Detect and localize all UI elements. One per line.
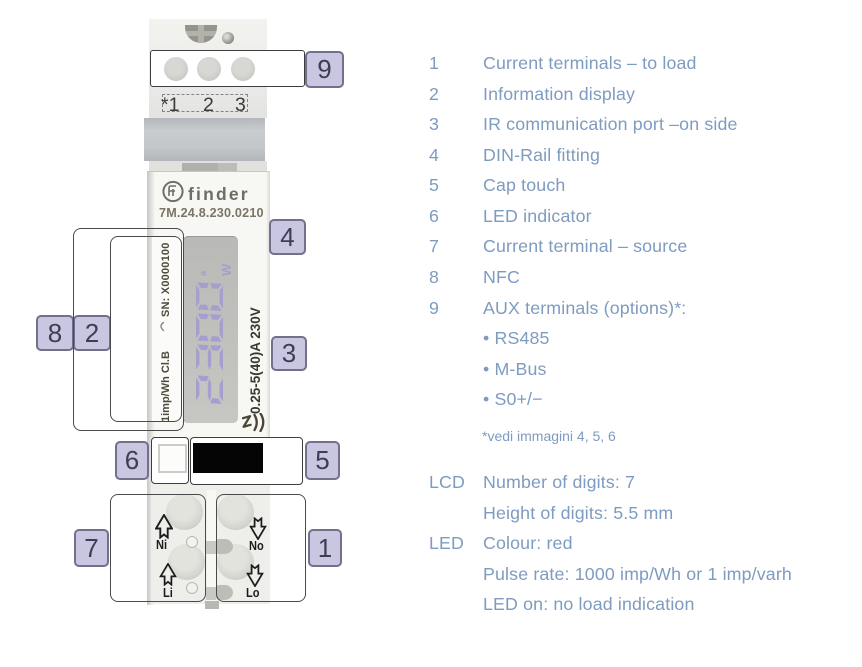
svg-text:a: a [198,270,208,277]
svg-text:W: W [219,263,233,277]
